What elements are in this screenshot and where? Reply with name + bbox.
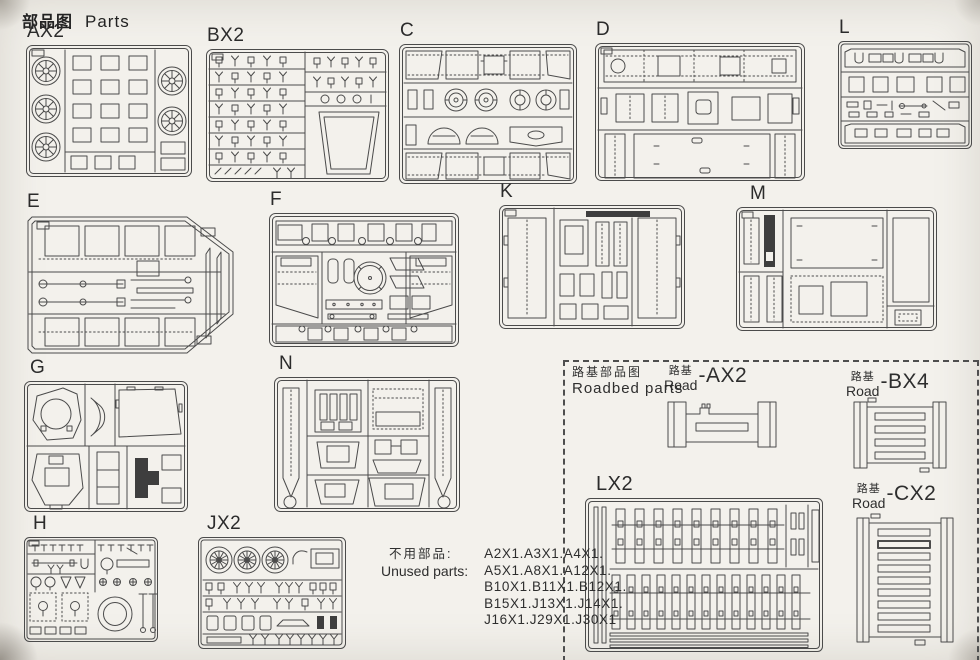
- unused-parts-line: B15X1.J13X1.J14X1.: [484, 596, 627, 613]
- sprue-lx2-label: LX2: [596, 474, 824, 494]
- sprue-ax2-drawing: [25, 44, 193, 178]
- unused-parts-line: B10X1.B11X1.B12X1.: [484, 579, 627, 596]
- sprue-h-label: H: [33, 514, 159, 533]
- sprue-g-label: G: [30, 358, 189, 377]
- sprue-g-drawing: [23, 380, 189, 513]
- sprue-g: G: [23, 358, 189, 513]
- unused-parts-line: A2X1.A3X1.A4X1.: [484, 546, 627, 563]
- sprue-ax2-label: AX2: [27, 22, 193, 41]
- sprue-m-drawing: [735, 206, 938, 332]
- unused-parts-list: A2X1.A3X1.A4X1. A5X1.A8X1.A12X1. B10X1.B…: [484, 546, 627, 629]
- sprue-jx2: JX2: [197, 514, 347, 650]
- road-item-cx2-en: Road: [852, 496, 885, 511]
- sprue-d-label: D: [596, 20, 806, 39]
- sprue-e-drawing: [25, 214, 247, 356]
- road-item-ax2-en: Road: [664, 378, 697, 393]
- unused-parts-line: J16X1.J29X1.J30X1: [484, 612, 627, 629]
- road-item-bx4-code: -BX4: [880, 370, 929, 394]
- road-item-bx4-text: 路基 Road: [846, 372, 879, 398]
- sprue-f-drawing: [268, 212, 460, 348]
- road-item-ax2-code: -AX2: [698, 364, 747, 388]
- sprue-h-drawing: [23, 536, 159, 643]
- sprue-m: M: [735, 184, 938, 332]
- sprue-f-label: F: [270, 190, 460, 209]
- sprue-n: N: [273, 354, 461, 513]
- road-item-ax2-text: 路基 Road: [664, 366, 697, 392]
- road-item-ax2-cn: 路基: [664, 366, 697, 378]
- road-item-cx2-text: 路基 Road: [852, 484, 885, 510]
- sprue-n-drawing: [273, 376, 461, 513]
- sprue-jx2-drawing: [197, 536, 347, 650]
- road-item-cx2: 路基 Road -CX2: [852, 484, 936, 510]
- road-part-cx2-drawing: [853, 510, 957, 652]
- sprue-m-label: M: [750, 184, 938, 203]
- unused-parts-block: 不用部品: Unused parts: A2X1.A3X1.A4X1. A5X1…: [381, 546, 627, 629]
- sprue-f: F: [268, 190, 460, 348]
- road-part-bx4-drawing: [850, 396, 950, 474]
- unused-parts-labels: 不用部品: Unused parts:: [381, 546, 468, 580]
- sprue-l-drawing: [837, 40, 973, 150]
- unused-parts-label-en: Unused parts:: [381, 562, 468, 580]
- road-part-ax2-drawing: [666, 396, 778, 452]
- sprue-e-label: E: [27, 192, 247, 211]
- sprue-l-label: L: [839, 18, 973, 37]
- sprue-n-label: N: [279, 354, 461, 373]
- sprue-c: C: [398, 21, 578, 185]
- sprue-h: H: [23, 514, 159, 643]
- sprue-bx2-label: BX2: [207, 26, 390, 45]
- road-item-cx2-cn: 路基: [852, 484, 885, 496]
- sprue-k-drawing: [498, 204, 686, 330]
- sprue-d: D: [594, 20, 806, 182]
- sprue-k: K: [498, 182, 686, 330]
- sprue-c-drawing: [398, 43, 578, 185]
- sprue-l: L: [837, 18, 973, 150]
- sprue-c-label: C: [400, 21, 578, 40]
- sprue-jx2-label: JX2: [207, 514, 347, 533]
- road-item-cx2-code: -CX2: [886, 482, 936, 506]
- sprue-d-drawing: [594, 42, 806, 182]
- sprue-ax2: AX2: [25, 22, 193, 178]
- road-item-bx4-cn: 路基: [846, 372, 879, 384]
- sprue-bx2-drawing: [205, 48, 390, 183]
- sprue-e: E: [25, 192, 247, 356]
- sprue-bx2: BX2: [205, 26, 390, 183]
- road-item-bx4: 路基 Road -BX4: [846, 372, 929, 398]
- unused-parts-line: A5X1.A8X1.A12X1.: [484, 563, 627, 580]
- road-item-ax2: 路基 Road -AX2: [664, 366, 747, 392]
- parts-sheet: 部品图Parts AX2 BX2: [0, 0, 980, 660]
- unused-parts-label-cn: 不用部品:: [389, 546, 468, 562]
- sprue-k-label: K: [500, 182, 686, 201]
